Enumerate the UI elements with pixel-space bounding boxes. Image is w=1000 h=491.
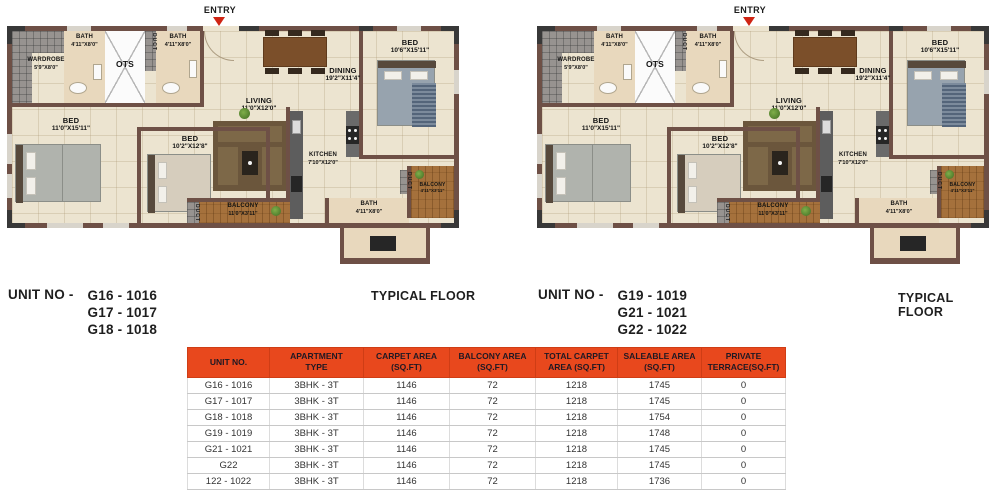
typical-floor-label-right: TYPICAL FLOOR — [898, 291, 1000, 319]
entry-arrow-icon — [743, 17, 755, 26]
window-segment — [984, 70, 989, 94]
table-cell: G22 — [188, 457, 270, 473]
bed-furniture — [377, 60, 435, 126]
unit-number: G19 - 1019 — [618, 287, 688, 304]
plant-icon — [945, 170, 954, 179]
table-cell: 1218 — [536, 441, 618, 457]
column-segment — [454, 26, 459, 44]
table-cell: 3BHK - 3T — [270, 425, 364, 441]
dining-chair — [795, 30, 809, 36]
table-cell: 1146 — [364, 409, 450, 425]
duct-label: DUCT — [675, 31, 686, 71]
table-cell: 1146 — [364, 393, 450, 409]
table-decor — [248, 161, 252, 165]
appliance — [291, 176, 302, 192]
window-segment — [397, 26, 421, 31]
table-cell: G18 - 1018 — [188, 409, 270, 425]
unit-number: G17 - 1017 — [88, 304, 158, 321]
ots-label: OTS — [635, 59, 675, 70]
plant-icon — [415, 170, 424, 179]
bed-fold-line — [592, 145, 593, 201]
duct-label: DUCT — [187, 202, 199, 223]
bath-bottom-label: BATH 4'11"X8'0" — [337, 201, 401, 215]
column-segment — [769, 26, 789, 31]
table-cell: 1146 — [364, 441, 450, 457]
table-cell: 72 — [450, 473, 536, 489]
bed-left-label: BED 11'0"X15'11" — [31, 116, 111, 133]
column-segment — [7, 223, 25, 228]
bed-middle-label: BED 10'2"X12'8" — [145, 134, 235, 151]
floorplan-left: ENTRY DUCT WARDROBE 5'9"X8'0" BATH 4'11"… — [6, 4, 462, 272]
bed-middle-label: BED 10'2"X12'8" — [675, 134, 765, 151]
duct-label: DUCT — [930, 170, 941, 194]
pillow — [158, 186, 167, 203]
unit-number: G16 - 1016 — [88, 287, 158, 304]
wall-segment — [137, 127, 141, 223]
column-header: BALCONY AREA(SQ.FT) — [450, 348, 536, 378]
table-cell: 72 — [450, 377, 536, 393]
window-segment — [597, 26, 621, 31]
pillow — [688, 186, 697, 203]
column-segment — [537, 223, 555, 228]
table-cell: 3BHK - 3T — [270, 377, 364, 393]
coffee-table — [772, 151, 788, 175]
column-segment — [984, 26, 989, 44]
utility-extension — [870, 228, 960, 264]
table-cell: 1748 — [618, 425, 702, 441]
plant-icon — [239, 108, 250, 119]
table-cell: 0 — [702, 393, 786, 409]
pillow — [556, 152, 566, 170]
sofa-cushion — [218, 147, 238, 185]
table-cell: 1736 — [618, 473, 702, 489]
table-cell: 1146 — [364, 457, 450, 473]
table-row: G17 - 10173BHK - 3T114672121817450 — [188, 393, 786, 409]
bed-furniture — [15, 144, 101, 202]
dining-chair — [841, 30, 855, 36]
pillow — [940, 71, 958, 80]
dining-chair — [288, 68, 302, 74]
unit-number: G22 - 1022 — [618, 321, 688, 338]
column-segment — [359, 26, 373, 31]
bathtub-fixture — [69, 82, 87, 94]
living-label: LIVING 11'0"X12'0" — [229, 96, 289, 113]
plant-icon — [271, 206, 281, 216]
table-cell: 1146 — [364, 425, 450, 441]
window-segment — [7, 174, 12, 198]
table-cell: 3BHK - 3T — [270, 457, 364, 473]
wardrobe-label: WARDROBE 5'9"X8'0" — [543, 57, 609, 71]
table-cell: 1146 — [364, 377, 450, 393]
table-cell: 72 — [450, 425, 536, 441]
table-cell: 1745 — [618, 441, 702, 457]
dining-label: DINING 19'2"X11'4" — [837, 66, 909, 83]
window-segment — [697, 26, 717, 31]
building-outline: DUCT WARDROBE 5'9"X8'0" BATH 4'11"X8'0" … — [7, 26, 459, 228]
bed-furniture — [907, 60, 965, 126]
window-segment — [537, 134, 542, 164]
window-segment — [927, 26, 951, 31]
dining-chair — [795, 68, 809, 74]
headboard — [678, 155, 685, 213]
table-cell: G19 - 1019 — [188, 425, 270, 441]
table-row: G18 - 10183BHK - 3T114672121817540 — [188, 409, 786, 425]
pillow — [26, 152, 36, 170]
window-segment — [47, 223, 83, 228]
bath-top-left-label: BATH 4'11"X8'0" — [594, 34, 635, 48]
window-segment — [103, 223, 129, 228]
floorplan-right: ENTRY DUCT WARDROBE 5'9"X8'0" BATH 4'11"… — [536, 4, 992, 272]
sofa-set — [213, 121, 287, 191]
table-cell: 1218 — [536, 409, 618, 425]
sink-fixture — [292, 120, 301, 134]
utility-extension — [340, 228, 430, 264]
dining-chair — [265, 68, 279, 74]
wall-segment — [359, 31, 363, 159]
burner — [878, 137, 881, 140]
pillow — [384, 71, 402, 80]
table-cell: 3BHK - 3T — [270, 473, 364, 489]
duct-label: DUCT — [400, 170, 411, 194]
table-cell: 72 — [450, 457, 536, 473]
table-cell: 1218 — [536, 473, 618, 489]
bed-furniture — [545, 144, 631, 202]
column-segment — [441, 223, 459, 228]
table-header-row: UNIT NO.APARTMENTTYPECARPET AREA(SQ.FT)B… — [188, 348, 786, 378]
utility-mat — [900, 236, 926, 251]
window-segment — [7, 134, 12, 164]
bed-left-label: BED 11'0"X15'11" — [561, 116, 641, 133]
bed-fold-line — [62, 145, 63, 201]
window-segment — [454, 70, 459, 94]
bath-top-right-label: BATH 4'11"X8'0" — [156, 34, 200, 48]
table-cell: 0 — [702, 425, 786, 441]
column-header: TOTAL CARPETAREA (SQ.FT) — [536, 348, 618, 378]
dining-table — [793, 37, 857, 67]
sofa-cushion — [748, 147, 768, 185]
column-segment — [889, 26, 903, 31]
plant-icon — [801, 206, 811, 216]
table-cell: 1146 — [364, 473, 450, 489]
plant-icon — [769, 108, 780, 119]
column-header: CARPET AREA(SQ.FT) — [364, 348, 450, 378]
coffee-table — [242, 151, 258, 175]
pillow — [26, 177, 36, 195]
bath-bottom-label: BATH 4'11"X8'0" — [867, 201, 931, 215]
typical-floor-label-left: TYPICAL FLOOR — [371, 289, 475, 303]
table-cell: 3BHK - 3T — [270, 393, 364, 409]
dining-chair — [288, 30, 302, 36]
wall-segment — [889, 31, 893, 159]
balcony-right-label: BALCONY 4'11"X3'11" — [943, 182, 982, 194]
bed-throw — [412, 83, 436, 127]
bathtub-fixture — [599, 82, 617, 94]
unit-no-block-right: UNIT NO - G19 - 1019 G21 - 1021 G22 - 10… — [538, 287, 687, 338]
burner — [348, 129, 351, 132]
table-cell: 72 — [450, 393, 536, 409]
sink-fixture — [822, 120, 831, 134]
burner — [354, 137, 357, 140]
dining-chair — [818, 68, 832, 74]
sofa-cushion — [262, 147, 282, 185]
bed-top-right-label: BED 10'6"X15'11" — [899, 38, 981, 55]
table-cell: 3BHK - 3T — [270, 409, 364, 425]
pillow — [556, 177, 566, 195]
table-decor — [778, 161, 782, 165]
burner — [884, 129, 887, 132]
table-row: G16 - 10163BHK - 3T114672121817450 — [188, 377, 786, 393]
floorplan-sheet: ENTRY DUCT WARDROBE 5'9"X8'0" BATH 4'11"… — [0, 0, 1000, 491]
ots-label: OTS — [105, 59, 145, 70]
pillow — [688, 162, 697, 179]
wall-segment — [359, 155, 454, 159]
table-cell: 1218 — [536, 425, 618, 441]
basin-fixture — [623, 64, 632, 80]
burner — [878, 129, 881, 132]
entry-label: ENTRY — [719, 5, 781, 15]
wall-segment — [667, 127, 800, 131]
wall-segment — [796, 127, 800, 198]
basin-fixture — [189, 60, 197, 78]
dining-label: DINING 19'2"X11'4" — [307, 66, 379, 83]
building-outline: DUCT WARDROBE 5'9"X8'0" BATH 4'11"X8'0" … — [537, 26, 989, 228]
table-cell: 122 - 1022 — [188, 473, 270, 489]
table-cell: 72 — [450, 409, 536, 425]
area-table: UNIT NO.APARTMENTTYPECARPET AREA(SQ.FT)B… — [187, 347, 786, 490]
dining-chair — [818, 30, 832, 36]
unit-number: G21 - 1021 — [618, 304, 688, 321]
kitchen-label: KITCHEN 7'10"X12'0" — [825, 152, 881, 166]
wall-segment — [730, 31, 734, 103]
table-cell: 1218 — [536, 377, 618, 393]
table-row: 122 - 10223BHK - 3T114672121817360 — [188, 473, 786, 489]
utility-mat — [370, 236, 396, 251]
table-row: G223BHK - 3T114672121817450 — [188, 457, 786, 473]
unit-number: G18 - 1018 — [88, 321, 158, 338]
window-segment — [167, 26, 187, 31]
toilet-fixture — [162, 82, 180, 94]
table-cell: 1745 — [618, 457, 702, 473]
table-cell: G16 - 1016 — [188, 377, 270, 393]
entry-arrow-icon — [213, 17, 225, 26]
entry-label: ENTRY — [189, 5, 251, 15]
balcony-right-label: BALCONY 4'11"X3'11" — [413, 182, 452, 194]
table-cell: 1218 — [536, 393, 618, 409]
column-segment — [537, 26, 542, 44]
unit-no-block-left: UNIT NO - G16 - 1016 G17 - 1017 G18 - 10… — [8, 287, 157, 338]
headboard — [16, 145, 23, 203]
wall-segment — [137, 127, 270, 131]
headboard — [148, 155, 155, 213]
column-header: SALEABLE AREA(SQ.FT) — [618, 348, 702, 378]
column-header: UNIT NO. — [188, 348, 270, 378]
headboard — [546, 145, 553, 203]
living-label: LIVING 11'0"X12'0" — [759, 96, 819, 113]
window-segment — [577, 223, 613, 228]
column-header: APARTMENTTYPE — [270, 348, 364, 378]
unit-no-label: UNIT NO - — [538, 287, 604, 338]
table-cell: G17 - 1017 — [188, 393, 270, 409]
burner — [354, 129, 357, 132]
table-cell: 3BHK - 3T — [270, 441, 364, 457]
kitchen-label: KITCHEN 7'10"X12'0" — [295, 152, 351, 166]
bath-top-right-label: BATH 4'11"X8'0" — [686, 34, 730, 48]
table-cell: 1754 — [618, 409, 702, 425]
sofa-set — [743, 121, 817, 191]
basin-fixture — [719, 60, 727, 78]
column-segment — [971, 223, 989, 228]
dining-chair — [265, 30, 279, 36]
duct-label: DUCT — [145, 31, 156, 71]
headboard — [378, 61, 436, 68]
sofa-cushion — [792, 147, 812, 185]
wall-segment — [200, 31, 204, 103]
unit-list: G16 - 1016 G17 - 1017 G18 - 1018 — [88, 287, 158, 338]
duct-label: DUCT — [717, 202, 729, 223]
burner — [348, 137, 351, 140]
table-cell: 0 — [702, 457, 786, 473]
unit-no-label: UNIT NO - — [8, 287, 74, 338]
stove — [346, 126, 359, 144]
wall-segment — [667, 127, 671, 223]
window-segment — [67, 26, 91, 31]
dining-table — [263, 37, 327, 67]
unit-list: G19 - 1019 G21 - 1021 G22 - 1022 — [618, 287, 688, 338]
wall-segment — [542, 103, 734, 107]
wall-segment — [12, 103, 204, 107]
table-row: G19 - 10193BHK - 3T114672121817480 — [188, 425, 786, 441]
table-cell: 0 — [702, 441, 786, 457]
table-cell: 0 — [702, 473, 786, 489]
pillow — [158, 162, 167, 179]
window-segment — [633, 223, 659, 228]
table-cell: 1745 — [618, 393, 702, 409]
column-segment — [239, 26, 259, 31]
column-segment — [7, 26, 12, 44]
wall-segment — [889, 155, 984, 159]
basin-fixture — [93, 64, 102, 80]
pillow — [914, 71, 932, 80]
column-header: PRIVATETERRACE(SQ.FT) — [702, 348, 786, 378]
appliance — [821, 176, 832, 192]
wall-segment — [266, 127, 270, 198]
table-cell: 0 — [702, 409, 786, 425]
table-cell: 72 — [450, 441, 536, 457]
table-row: G21 - 10213BHK - 3T114672121817450 — [188, 441, 786, 457]
table-cell: 1218 — [536, 457, 618, 473]
window-segment — [537, 174, 542, 198]
bath-top-left-label: BATH 4'11"X8'0" — [64, 34, 105, 48]
table-cell: G21 - 1021 — [188, 441, 270, 457]
pillow — [410, 71, 428, 80]
dining-chair — [311, 30, 325, 36]
table-cell: 0 — [702, 377, 786, 393]
stove — [876, 126, 889, 144]
table-cell: 1745 — [618, 377, 702, 393]
headboard — [908, 61, 966, 68]
burner — [884, 137, 887, 140]
wardrobe-label: WARDROBE 5'9"X8'0" — [13, 57, 79, 71]
toilet-fixture — [692, 82, 710, 94]
bed-top-right-label: BED 10'6"X15'11" — [369, 38, 451, 55]
bed-throw — [942, 83, 966, 127]
